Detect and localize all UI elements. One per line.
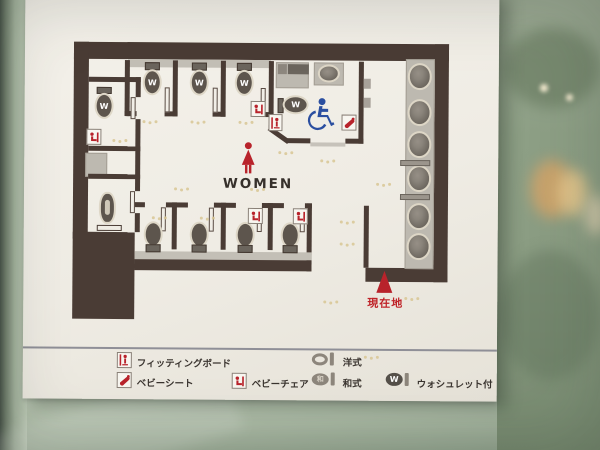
wall: [433, 44, 449, 282]
western-toilet-oval: [312, 353, 328, 365]
restroom-map-sign-board: W W W W W: [23, 0, 500, 402]
baby-chair-icon: [232, 373, 247, 389]
glass-reflection: [500, 250, 600, 380]
legend-label-baby-sheet: ベビーシート: [137, 375, 194, 389]
japanese-toilet-oval: 和: [312, 373, 329, 385]
baby-chair-icon: [293, 208, 308, 224]
counter-partition: [400, 194, 430, 200]
japanese-toilet-bar: [331, 372, 335, 385]
stall-wall: [89, 77, 141, 82]
fitting-board-icon: [268, 114, 282, 131]
washlet-toilet-icon: W: [235, 70, 254, 96]
japanese-toilet-icon: 和: [312, 372, 335, 385]
woman-pictogram-icon: [238, 142, 258, 174]
stall-door: [213, 88, 218, 113]
photo-of-restroom-map: W W W W W: [0, 0, 600, 450]
accessible-room-door: [310, 142, 345, 146]
stall-wall: [136, 77, 141, 97]
stall-wall: [88, 174, 140, 179]
stall-partition: [221, 61, 226, 117]
stall-door: [131, 97, 136, 119]
stall-wall: [88, 146, 140, 151]
fitting-board-icon: [117, 352, 132, 368]
stall-partition: [172, 202, 177, 249]
glass-reflection: [566, 94, 573, 101]
baby-chair-icon: [86, 129, 101, 145]
legend-label-western: 洋式: [343, 355, 362, 369]
braille-dots: [376, 183, 379, 186]
washlet-letter: W: [195, 78, 204, 87]
wheelchair-icon: [300, 96, 336, 132]
current-location-label: 現在地: [347, 295, 423, 312]
baby-chair-icon: [248, 208, 263, 224]
sink-basin: [407, 131, 431, 158]
washlet-letter: W: [100, 101, 109, 110]
baby-sheet-icon: [341, 115, 356, 131]
door-hinge: [364, 79, 371, 89]
counter-fixture: [278, 64, 287, 74]
sink-basin: [407, 233, 431, 260]
current-location-marker: [376, 271, 392, 293]
washlet-letter: W: [291, 100, 300, 109]
washlet-icon: W: [386, 373, 409, 386]
sink-basin: [407, 165, 431, 192]
legend-label-fitting-board: フィッティングボード: [137, 355, 231, 370]
glass-reflection: [505, 28, 600, 108]
braille-dots: [238, 121, 241, 124]
braille-dots: [142, 120, 145, 123]
braille-dots: [174, 187, 177, 190]
sink-basin: [407, 203, 431, 230]
washlet-letter: W: [240, 78, 249, 87]
door-hinge: [364, 98, 371, 108]
braille-dots: [112, 139, 115, 142]
glass-reflection: [540, 84, 548, 92]
women-label: WOMEN: [213, 176, 303, 193]
braille-dots: [340, 221, 343, 224]
stall-partition: [173, 60, 178, 116]
glass-reflection: [558, 170, 588, 216]
toilet-tank: [238, 245, 253, 253]
stall-wall: [135, 119, 141, 191]
legend-label-japanese: 和式: [343, 376, 362, 390]
washlet-toilet-icon: W: [95, 93, 114, 119]
braille-dots: [364, 356, 367, 359]
washlet-letter: W: [148, 78, 157, 87]
baby-sheet-icon: [117, 372, 132, 388]
western-toilet-icon: [312, 352, 334, 365]
stall-wall: [135, 202, 145, 207]
legend-label-baby-chair: ベビーチェア: [252, 376, 309, 390]
braille-dots: [152, 216, 155, 219]
stall-wall: [135, 213, 140, 232]
washlet-toilet-icon: W: [190, 70, 209, 96]
washlet-letter: W: [390, 375, 399, 384]
stall-door: [209, 208, 214, 232]
toilet-tank: [146, 244, 161, 252]
squat-toilet-icon: [99, 192, 116, 224]
braille-dots: [340, 243, 343, 246]
braille-dots: [323, 300, 326, 303]
wall: [134, 259, 311, 271]
western-toilet-bar: [330, 352, 334, 365]
washlet-toilet-icon: W: [143, 69, 162, 95]
washlet-bar: [405, 373, 409, 386]
legend-label-washlet: ウォシュレット付: [417, 376, 493, 391]
stall-partition: [125, 60, 130, 116]
sink-basin: [407, 99, 431, 126]
wall: [72, 232, 135, 319]
braille-dots: [320, 159, 323, 162]
sink-basin: [318, 64, 340, 82]
washlet-oval: W: [386, 373, 403, 386]
stall-partition: [269, 61, 274, 117]
braille-dots: [190, 121, 193, 124]
braille-dots: [278, 151, 281, 154]
stall-partition: [221, 203, 226, 250]
wall-entrance: [363, 206, 368, 268]
baby-chair-icon: [251, 101, 266, 117]
stall-partition: [268, 203, 273, 250]
japanese-toilet-char: 和: [317, 374, 324, 384]
toilet-tank: [192, 245, 207, 253]
changing-pad: [288, 64, 309, 74]
wall: [286, 138, 310, 143]
counter-partition: [400, 160, 430, 166]
stall-door: [165, 87, 170, 112]
braille-dots: [200, 217, 203, 220]
toilet-tank: [283, 245, 298, 253]
glass-reflection: [585, 195, 600, 235]
stall-shelf: [97, 225, 122, 231]
legend-divider: [23, 346, 497, 351]
sink-basin: [408, 63, 432, 90]
